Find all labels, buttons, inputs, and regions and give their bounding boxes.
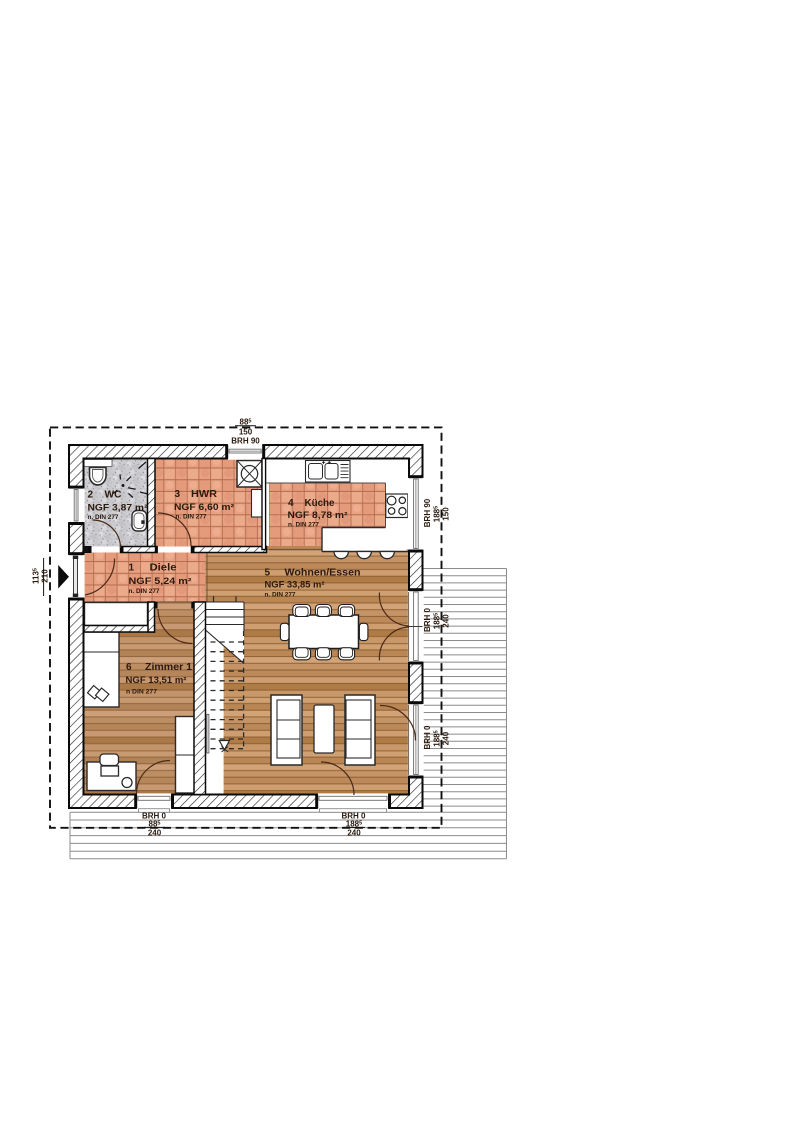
svg-text:2: 2 (88, 490, 94, 501)
svg-text:NGF 5,24 m²: NGF 5,24 m² (129, 576, 192, 586)
svg-text:240: 240 (442, 614, 451, 628)
svg-text:150: 150 (442, 507, 451, 521)
svg-text:BRH 0: BRH 0 (423, 607, 432, 632)
svg-text:WC: WC (105, 490, 122, 501)
svg-text:NGF 8,78 m²: NGF 8,78 m² (288, 510, 348, 520)
svg-text:NGF 13,51 m²: NGF 13,51 m² (126, 675, 187, 685)
svg-text:Küche: Küche (305, 498, 335, 509)
svg-text:n. DIN 277: n. DIN 277 (176, 514, 208, 521)
svg-text:240: 240 (347, 828, 361, 837)
svg-text:n DIN 277: n DIN 277 (126, 689, 158, 696)
svg-text:Diele: Diele (150, 563, 177, 574)
svg-text:210: 210 (41, 569, 50, 583)
svg-text:3: 3 (175, 489, 181, 500)
svg-text:n. DIN 277: n. DIN 277 (129, 588, 161, 595)
svg-text:HWR: HWR (191, 489, 218, 500)
svg-text:n. DIN 277: n. DIN 277 (88, 514, 120, 521)
svg-text:BRH 90: BRH 90 (231, 437, 260, 446)
svg-text:n. DIN 277: n. DIN 277 (288, 522, 320, 529)
svg-text:BRH 0: BRH 0 (423, 725, 432, 750)
svg-text:NGF 33,85 m²: NGF 33,85 m² (265, 580, 325, 590)
svg-text:Wohnen/Essen: Wohnen/Essen (285, 568, 361, 579)
svg-text:n. DIN 277: n. DIN 277 (265, 592, 297, 599)
svg-text:BRH 90: BRH 90 (423, 498, 432, 527)
svg-text:1: 1 (129, 563, 135, 574)
svg-text:5: 5 (265, 568, 271, 579)
svg-text:Zimmer 1: Zimmer 1 (145, 662, 192, 673)
svg-text:240: 240 (148, 828, 162, 837)
svg-text:4: 4 (288, 498, 294, 509)
svg-text:6: 6 (126, 662, 132, 673)
svg-text:NGF 3,87 m²: NGF 3,87 m² (88, 503, 148, 513)
svg-text:240: 240 (442, 731, 451, 745)
svg-text:150: 150 (239, 428, 253, 437)
svg-text:NGF 6,60 m²: NGF 6,60 m² (174, 502, 234, 512)
